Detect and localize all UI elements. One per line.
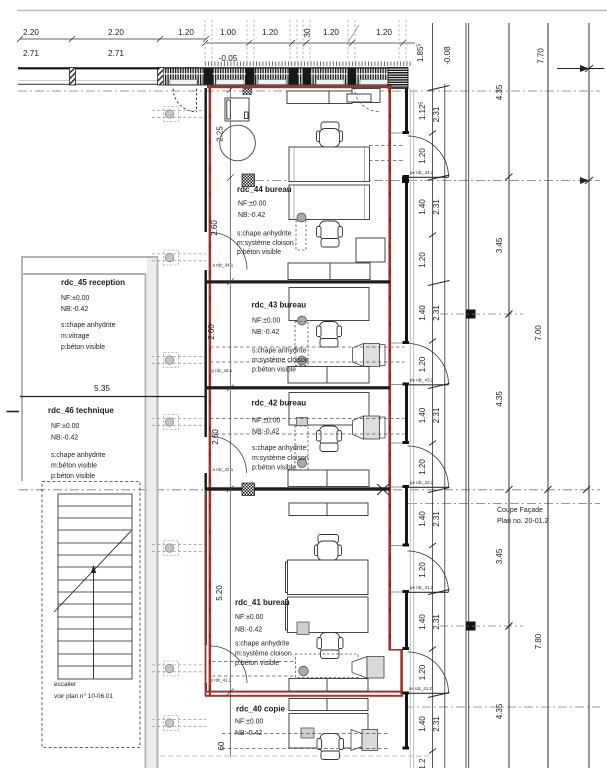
svg-text:se rdc_41.2: se rdc_41.2 <box>409 686 433 691</box>
svg-text:2.60: 2.60 <box>211 429 220 445</box>
svg-text:NB:-0.42: NB:-0.42 <box>235 730 262 737</box>
svg-text:7.00: 7.00 <box>534 325 543 341</box>
svg-text:4.35: 4.35 <box>495 391 504 407</box>
svg-text:p:béton visible: p:béton visible <box>51 473 95 480</box>
svg-text:5.35: 5.35 <box>94 384 110 393</box>
svg-text:NB:-0.42: NB:-0.42 <box>252 329 279 336</box>
svg-text:NF:±0.00: NF:±0.00 <box>252 318 280 325</box>
svg-text:p:béton visible: p:béton visible <box>252 465 296 472</box>
svg-text:m:système cloison: m:système cloison <box>252 357 309 364</box>
svg-text:1.20: 1.20 <box>418 459 427 475</box>
svg-text:7.70: 7.70 <box>537 48 546 64</box>
svg-text:2.20: 2.20 <box>23 28 39 37</box>
svg-text:p:béton visible: p:béton visible <box>235 660 279 667</box>
svg-text:pe rdc_43.2: pe rdc_43.2 <box>410 378 434 383</box>
svg-text:s:chape anhydrite: s:chape anhydrite <box>237 231 292 238</box>
svg-text:1.00: 1.00 <box>220 28 236 37</box>
svg-text:rdc_44 bureau: rdc_44 bureau <box>237 185 292 194</box>
svg-text:2.31: 2.31 <box>432 716 441 732</box>
svg-text:30: 30 <box>303 28 312 38</box>
svg-text:p rdc_41.1: p rdc_41.1 <box>211 678 232 683</box>
svg-text:p:béton visible: p:béton visible <box>252 367 296 374</box>
svg-text:pe rdc_41.2: pe rdc_41.2 <box>410 585 434 590</box>
svg-text:2.71: 2.71 <box>108 49 124 58</box>
svg-text:rdc_40 copie: rdc_40 copie <box>236 705 285 714</box>
svg-text:NB:-0.42: NB:-0.42 <box>252 429 279 436</box>
svg-text:NF:±0.00: NF:±0.00 <box>235 719 263 726</box>
svg-text:2.31: 2.31 <box>432 407 441 423</box>
svg-text:s:chape anhydrite: s:chape anhydrite <box>235 641 290 648</box>
svg-text:NB:-0.42: NB:-0.42 <box>238 212 265 219</box>
svg-text:-0.08: -0.08 <box>443 46 452 65</box>
svg-text:m:béton visible: m:béton visible <box>51 463 97 470</box>
svg-text:rdc_42 bureau: rdc_42 bureau <box>252 399 307 408</box>
svg-text:3.45: 3.45 <box>495 548 504 564</box>
svg-text:p:béton visible: p:béton visible <box>61 344 105 351</box>
svg-text:1.20: 1.20 <box>418 664 427 680</box>
svg-text:NF:±0.00: NF:±0.00 <box>51 423 79 430</box>
svg-text:2.31: 2.31 <box>432 106 441 122</box>
svg-text:1.20: 1.20 <box>376 28 392 37</box>
svg-text:2.31: 2.31 <box>432 199 441 215</box>
svg-text:1.40: 1.40 <box>418 614 427 630</box>
svg-text:1.20: 1.20 <box>418 252 427 268</box>
svg-text:1.2: 1.2 <box>418 758 427 768</box>
svg-text:p:béton visible: p:béton visible <box>237 249 281 256</box>
svg-text:voir plan n° 10-06.01: voir plan n° 10-06.01 <box>54 692 113 700</box>
svg-text:4.35: 4.35 <box>495 84 504 100</box>
svg-text:1.20: 1.20 <box>418 356 427 372</box>
svg-text:4.35: 4.35 <box>495 703 504 719</box>
svg-text:1.20: 1.20 <box>323 28 339 37</box>
svg-text:1.40: 1.40 <box>418 407 427 423</box>
svg-text:NB:-0.42: NB:-0.42 <box>235 627 262 634</box>
svg-text:rdc_41 bureau: rdc_41 bureau <box>235 598 290 607</box>
svg-text:60: 60 <box>217 741 226 750</box>
svg-text:NF:±0.00: NF:±0.00 <box>252 418 280 425</box>
svg-text:m:vitrage: m:vitrage <box>61 333 90 340</box>
svg-text:m:système cloison: m:système cloison <box>235 651 292 658</box>
svg-text:pe rdc_44.2: pe rdc_44.2 <box>410 170 434 175</box>
svg-text:2.71: 2.71 <box>23 49 39 58</box>
svg-text:pe rdc_42.2: pe rdc_42.2 <box>410 480 434 485</box>
svg-text:2.31: 2.31 <box>432 305 441 321</box>
svg-text:1.20: 1.20 <box>262 28 278 37</box>
svg-text:1.20: 1.20 <box>178 28 194 37</box>
svg-text:s:chape anhydrite: s:chape anhydrite <box>61 322 116 329</box>
svg-text:1.40: 1.40 <box>418 511 427 527</box>
svg-text:2.31: 2.31 <box>432 511 441 527</box>
svg-text:7.80: 7.80 <box>534 633 543 649</box>
svg-text:m:système cloison: m:système cloison <box>237 240 294 247</box>
svg-text:NB:-0.42: NB:-0.42 <box>51 435 78 442</box>
svg-text:NF:±0.00: NF:±0.00 <box>235 614 263 621</box>
svg-text:m:système cloison: m:système cloison <box>252 455 309 462</box>
svg-text:NF:±0.00: NF:±0.00 <box>238 201 266 208</box>
svg-text:s:chape anhydrite: s:chape anhydrite <box>252 445 307 452</box>
svg-text:escalier: escalier <box>54 681 77 688</box>
svg-text:2.31: 2.31 <box>432 614 441 630</box>
svg-text:2.60: 2.60 <box>210 220 219 236</box>
svg-text:1.40: 1.40 <box>418 199 427 215</box>
svg-text:2.20: 2.20 <box>108 28 124 37</box>
svg-text:Plan no. 20-01.2: Plan no. 20-01.2 <box>497 518 548 525</box>
svg-text:1.20: 1.20 <box>418 148 427 164</box>
svg-text:rdc_45 reception: rdc_45 reception <box>61 278 125 287</box>
svg-text:s:chape anhydrite: s:chape anhydrite <box>51 452 106 459</box>
svg-text:2.60: 2.60 <box>207 324 216 340</box>
svg-text:3.45: 3.45 <box>495 237 504 253</box>
svg-text:NB:-0.42: NB:-0.42 <box>61 306 88 313</box>
svg-text:1.40: 1.40 <box>418 305 427 321</box>
svg-text:p rdc_43.1: p rdc_43.1 <box>212 368 233 373</box>
svg-text:rdc_46 technique: rdc_46 technique <box>48 406 114 415</box>
svg-text:NF:±0.00: NF:±0.00 <box>61 295 89 302</box>
svg-text:rdc_43 bureau: rdc_43 bureau <box>252 301 307 310</box>
svg-text:s:chape anhydrite: s:chape anhydrite <box>252 348 307 355</box>
svg-text:Coupe Façade: Coupe Façade <box>497 507 543 514</box>
svg-text:5.20: 5.20 <box>215 585 224 601</box>
svg-text:1.20: 1.20 <box>418 562 427 578</box>
svg-text:1.40: 1.40 <box>418 716 427 732</box>
